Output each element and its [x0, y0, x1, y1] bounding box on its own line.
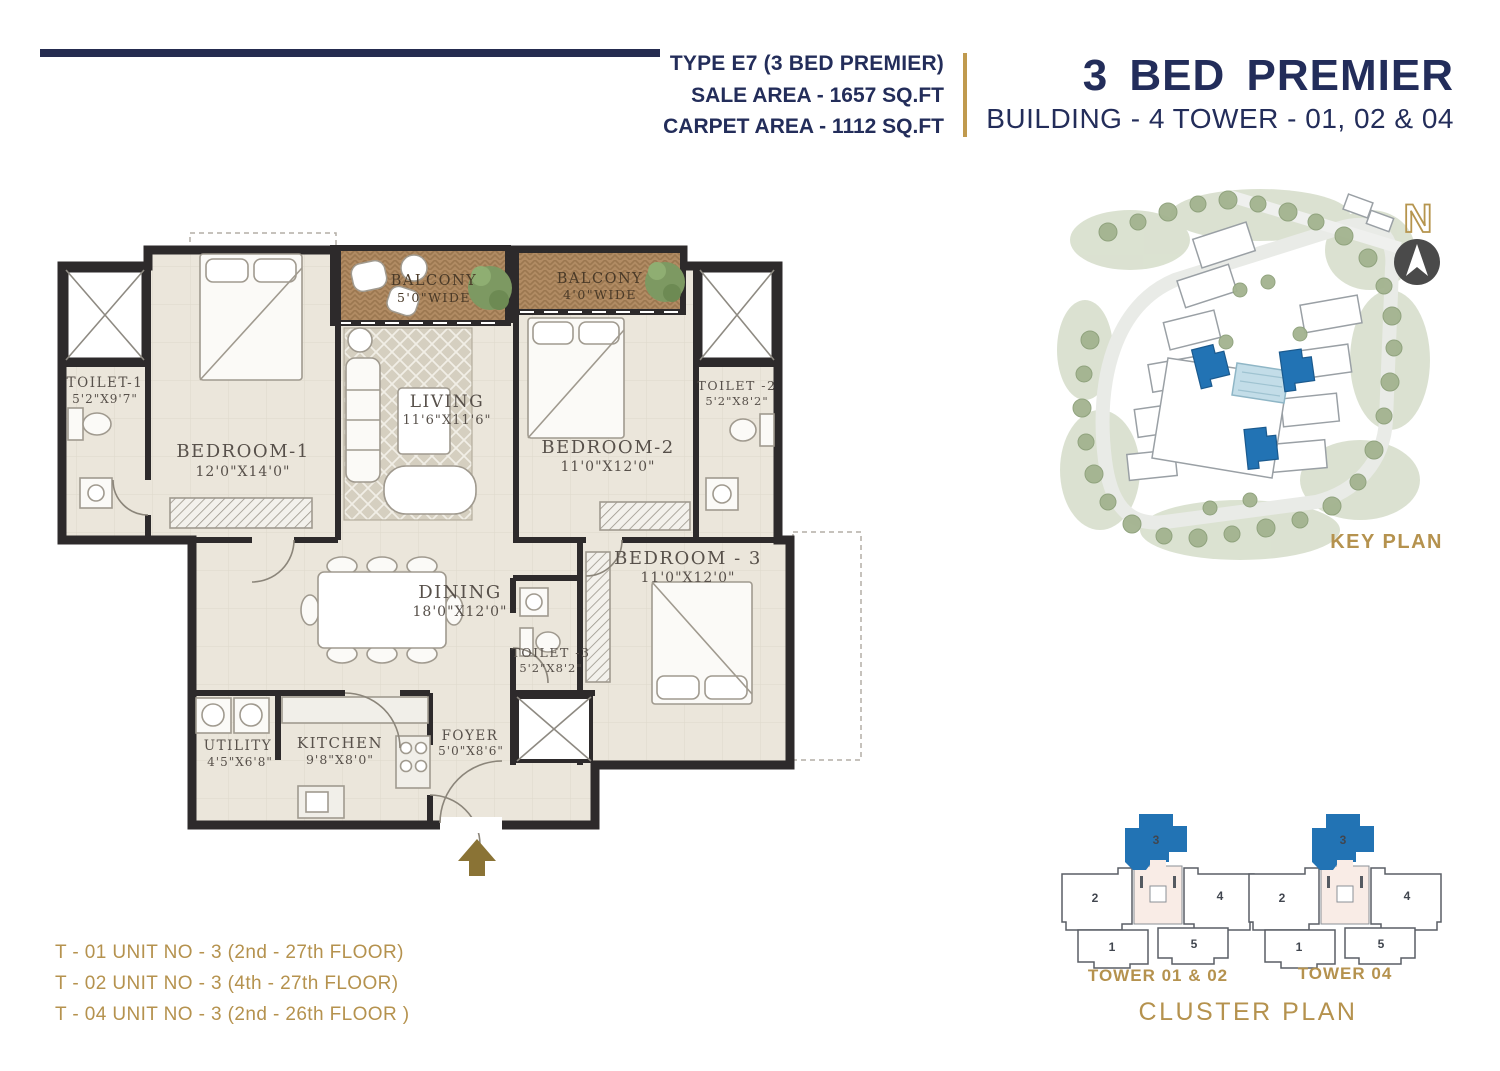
cluster-plan-caption: CLUSTER PLAN	[1139, 998, 1358, 1027]
floor-plan: TOILET-1 5'2"X9'7" BEDROOM-1 12'0"X14'0"…	[62, 233, 861, 876]
dashed-ledge-right	[793, 532, 861, 760]
tower-2-caption: TOWER 04	[1298, 964, 1393, 984]
cluster-tower-1: 2 4 1 5 3	[1062, 814, 1254, 968]
unit-note-t01: T - 01 UNIT NO - 3 (2nd - 27th FLOOR)	[55, 942, 404, 964]
key-plan: N	[1057, 189, 1440, 560]
keyplan-caption: KEY PLAN	[1330, 531, 1443, 554]
brochure-page: TYPE E7 (3 BED PREMIER) SALE AREA - 1657…	[0, 0, 1500, 1071]
tower-1-caption: TOWER 01 & 02	[1088, 966, 1228, 986]
entry-gap	[440, 817, 502, 833]
unit-note-t02: T - 02 UNIT NO - 3 (4th - 27th FLOOR)	[55, 973, 399, 995]
unit-note-t04: T - 04 UNIT NO - 3 (2nd - 26th FLOOR )	[55, 1004, 409, 1026]
cluster-plan: 2 4 1 5 3 2 4 1 5	[1062, 814, 1441, 968]
keyplan-pool	[1232, 363, 1289, 403]
cluster-tower-2: 2 4 1 5 3	[1249, 814, 1441, 968]
drawings-canvas: TOILET-1 5'2"X9'7" BEDROOM-1 12'0"X14'0"…	[0, 0, 1500, 1071]
entry-arrow-icon	[458, 839, 496, 876]
